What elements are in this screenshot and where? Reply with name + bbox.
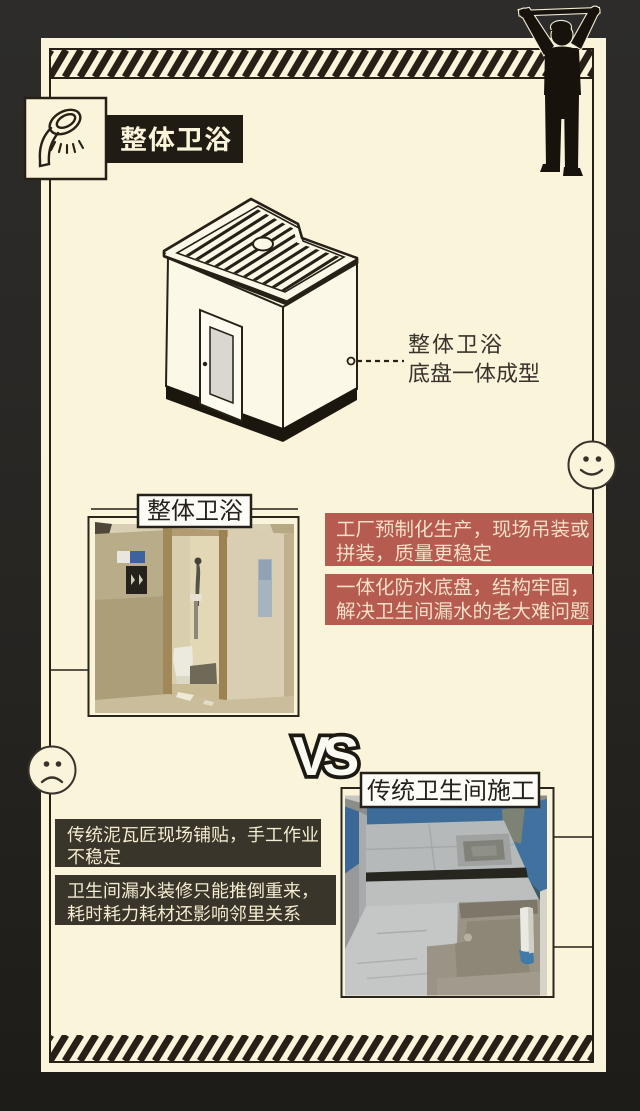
svg-text:VS: VS bbox=[293, 725, 358, 787]
